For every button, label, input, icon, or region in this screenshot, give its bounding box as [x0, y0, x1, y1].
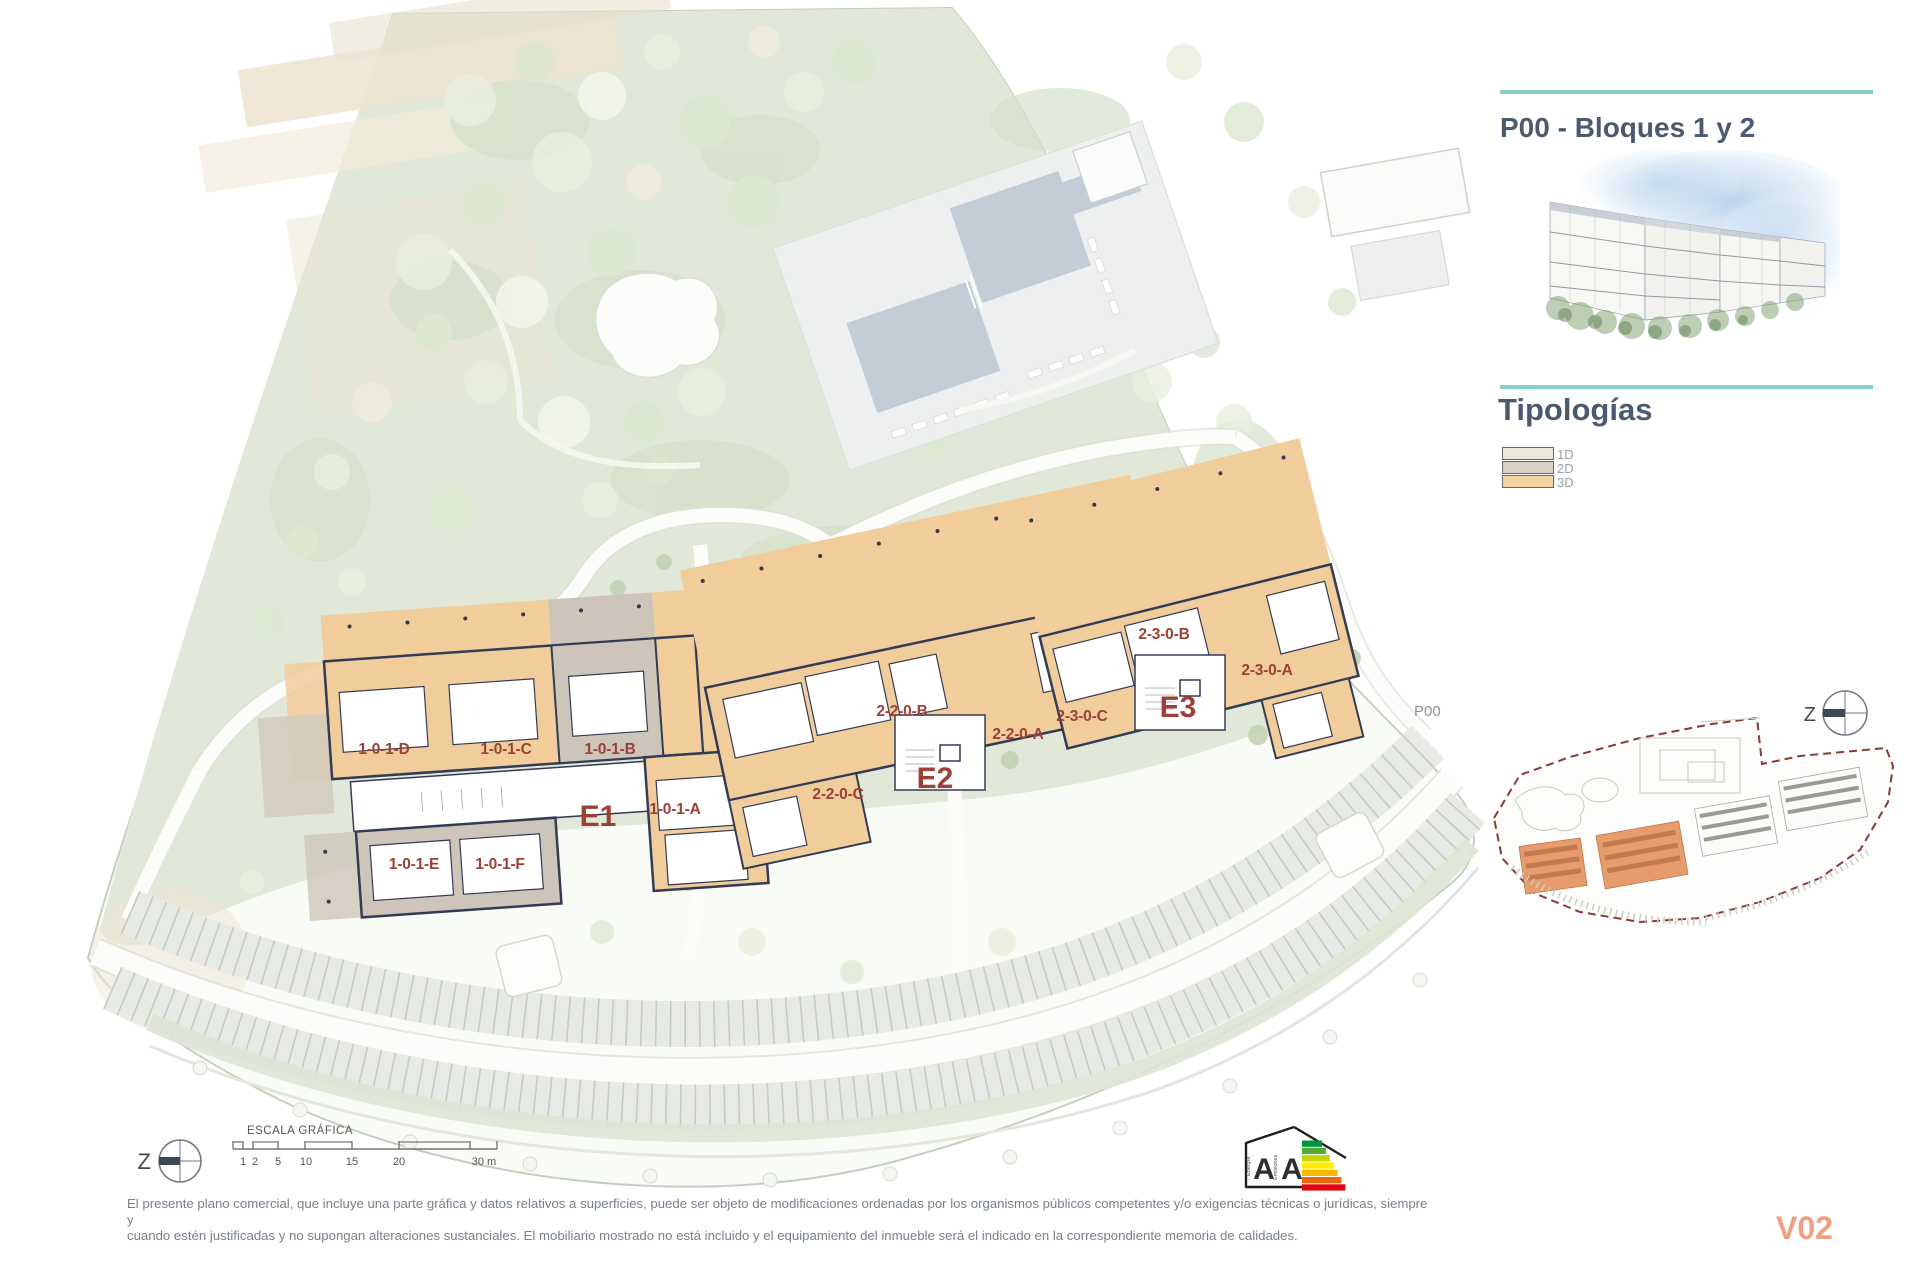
north-letter: Z: [1804, 704, 1816, 726]
scale-tick-label: 2: [252, 1156, 258, 1168]
energy-bar: [1302, 1184, 1345, 1190]
unit-label: 2-3-0-A: [1241, 662, 1292, 679]
energy-scale-label: Energía: [1246, 1156, 1252, 1176]
energy-bars: [1302, 1141, 1345, 1191]
block-label: E3: [1160, 691, 1197, 724]
unit-label: 2-2-0-B: [876, 703, 927, 720]
scale-tick-label: 15: [346, 1156, 358, 1168]
minimap-block-1: [1519, 838, 1587, 894]
legend-row: 2D: [1502, 461, 1574, 475]
disclaimer-line-1: El presente plano comercial, que incluye…: [127, 1196, 1437, 1228]
scale-tick-label: 20: [393, 1156, 405, 1168]
legend-swatch: [1502, 447, 1554, 460]
unit-label: 1-0-1-E: [389, 856, 439, 873]
energy-letter-a2: A: [1281, 1153, 1303, 1186]
block-label: E1: [580, 800, 617, 833]
energy-rating-badge: A A Energía Emisiones: [1246, 1127, 1346, 1191]
unit-label: 1-0-1-D: [358, 741, 409, 758]
energy-bar: [1302, 1148, 1326, 1154]
playground: [596, 273, 720, 377]
north-arrow: Z: [138, 1140, 201, 1182]
disclaimer-line-2: cuando estén justificadas y no supongan …: [127, 1228, 1437, 1244]
minimap: P00: [1414, 703, 1893, 922]
energy-bar: [1302, 1155, 1330, 1161]
page-title: P00 - Bloques 1 y 2: [1500, 112, 1755, 144]
legend-swatch: [1502, 475, 1554, 488]
energy-bar: [1302, 1162, 1334, 1168]
top-rule: [1500, 90, 1873, 94]
energy-bar: [1302, 1141, 1322, 1147]
bottom-rule: [1500, 385, 1873, 389]
legend-label: 2D: [1557, 462, 1574, 475]
legend-row: 3D: [1502, 475, 1574, 489]
scale-tick-label: 10: [300, 1156, 312, 1168]
energy-bar: [1302, 1177, 1342, 1183]
page: 1-0-1-D1-0-1-C1-0-1-B1-0-1-A1-0-1-E1-0-1…: [0, 0, 1920, 1280]
building-watercolor-image: [1540, 150, 1840, 382]
energy-bar: [1302, 1170, 1338, 1176]
unit-label: 2-2-0-A: [992, 726, 1043, 743]
unit-label: 2-2-0-C: [812, 786, 863, 803]
scale-tick-label: 1: [240, 1156, 246, 1168]
typology-legend: 1D2D3D: [1502, 447, 1574, 489]
unit-label: 2-3-0-B: [1138, 626, 1189, 643]
legend-label: 1D: [1557, 448, 1574, 461]
unit-label: 1-0-1-F: [475, 856, 524, 873]
unit-label: 1-0-1-B: [584, 741, 635, 758]
energy-scale-label: Emisiones: [1273, 1154, 1279, 1180]
legend-row: 1D: [1502, 447, 1574, 461]
minimap-label: P00: [1414, 703, 1441, 720]
legend-swatch: [1502, 461, 1554, 474]
disclaimer-text: El presente plano comercial, que incluye…: [127, 1196, 1437, 1244]
scale-tick-label: 5: [275, 1156, 281, 1168]
unit-label: 2-3-0-C: [1056, 708, 1107, 725]
scale-bar-title: ESCALA GRÁFICA: [247, 1124, 353, 1137]
typologies-heading: Tipologías: [1498, 392, 1652, 428]
north-letter: Z: [138, 1149, 151, 1174]
legend-label: 3D: [1557, 476, 1574, 489]
block-label: E2: [917, 762, 954, 795]
scale-tick-label: 30 m: [472, 1156, 496, 1168]
energy-letter-a1: A: [1253, 1153, 1275, 1186]
unit-label: 1-0-1-C: [480, 741, 531, 758]
minimap-north-arrow: Z: [1804, 691, 1867, 735]
unit-label: 1-0-1-A: [649, 801, 700, 818]
version-label: V02: [1776, 1210, 1833, 1247]
